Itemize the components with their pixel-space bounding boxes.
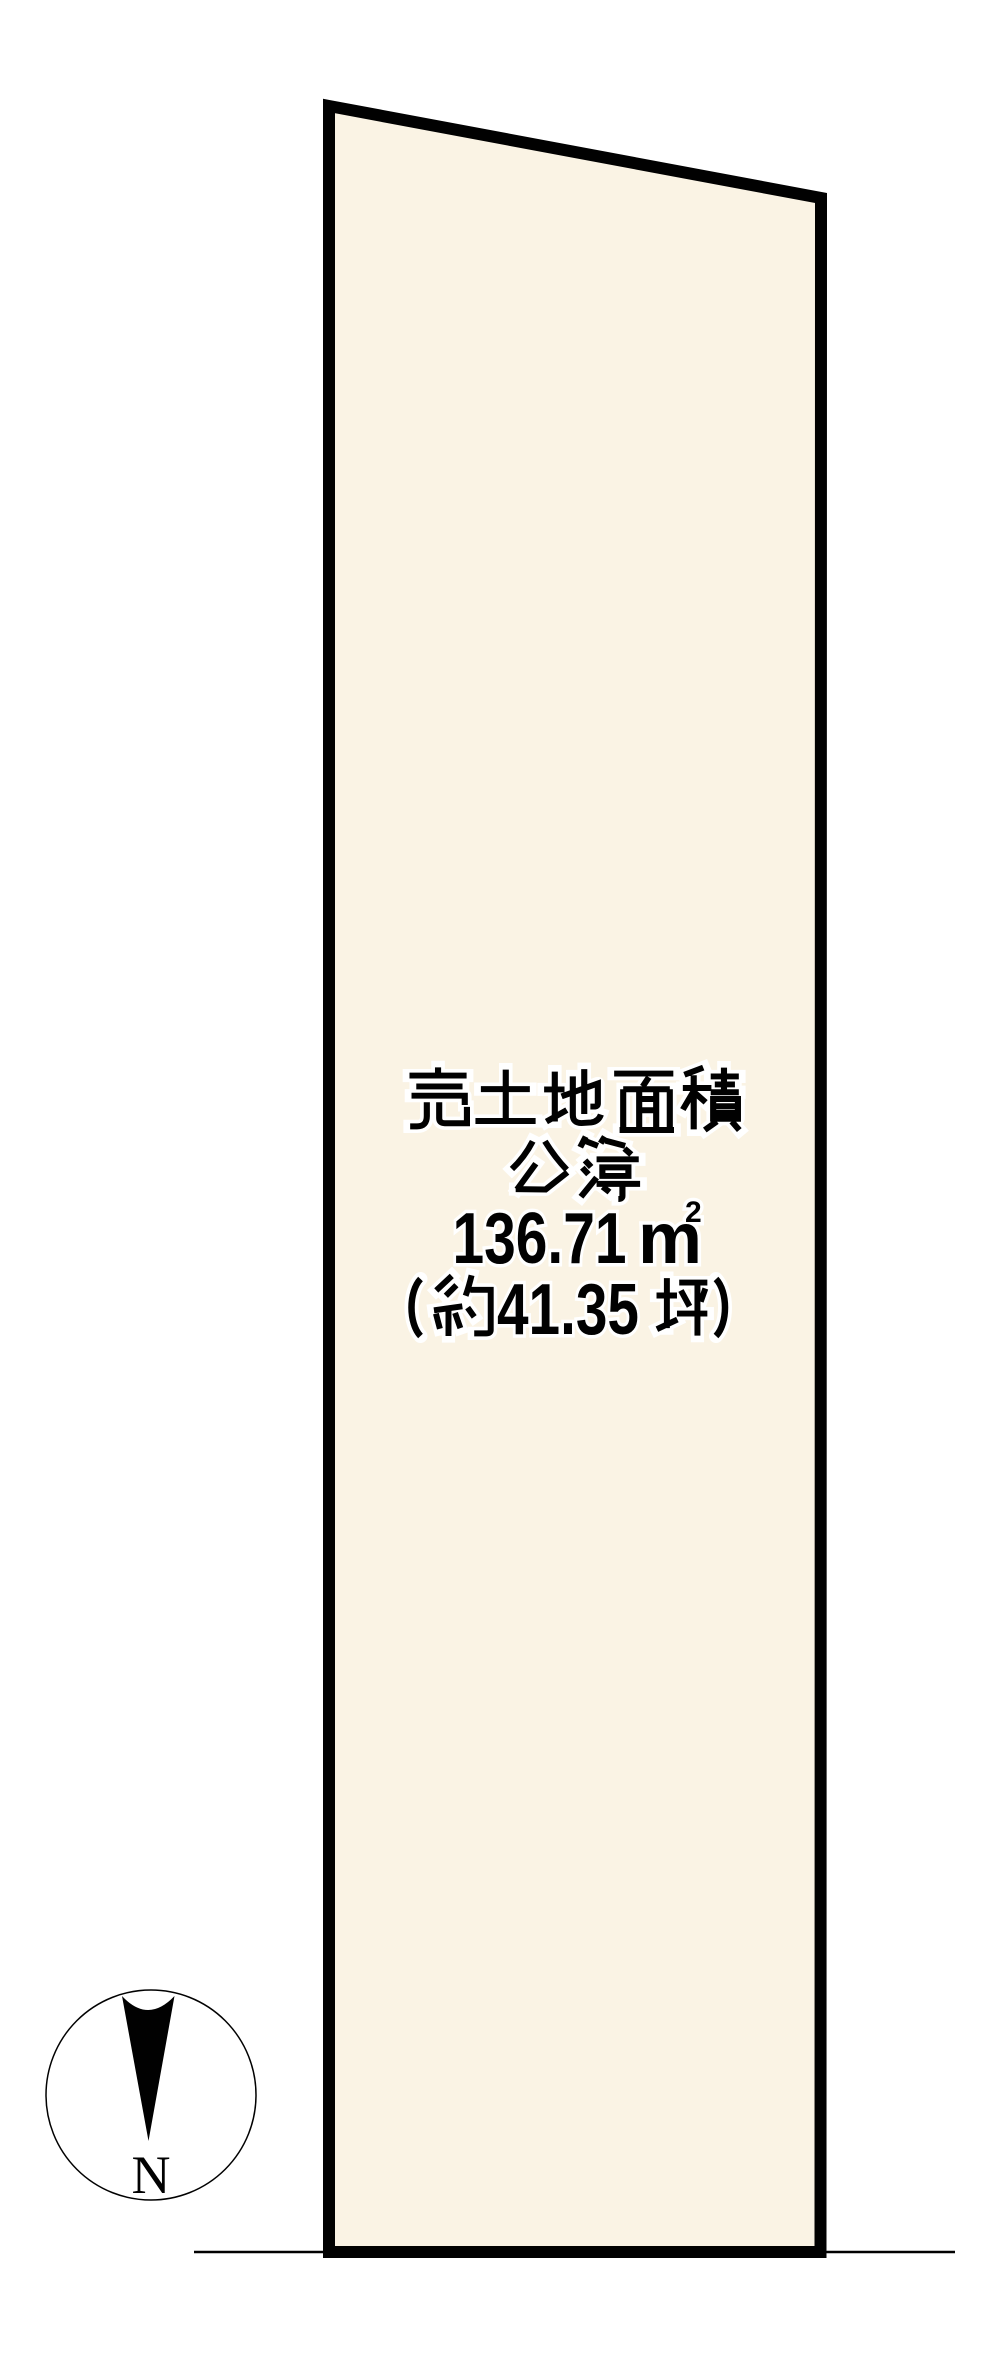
svg-text:2: 2	[685, 1196, 702, 1229]
svg-text:41.35: 41.35	[497, 1270, 639, 1350]
svg-text:N: N	[132, 2145, 171, 2205]
svg-text:136.71: 136.71	[453, 1199, 627, 1279]
